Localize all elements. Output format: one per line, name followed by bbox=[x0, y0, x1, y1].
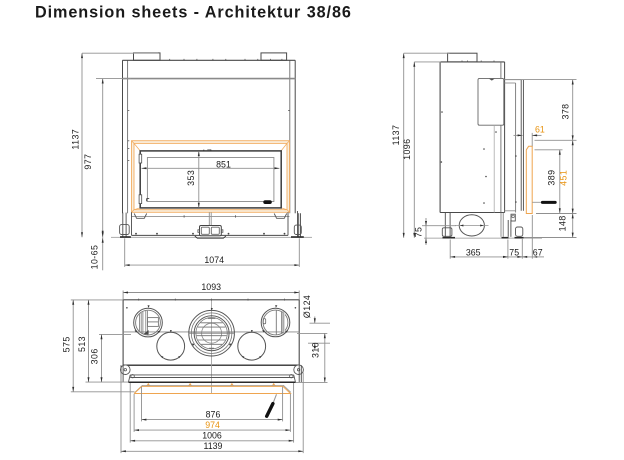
svg-text:513: 513 bbox=[77, 336, 87, 352]
svg-text:148: 148 bbox=[557, 215, 567, 231]
svg-text:Ø124: Ø124 bbox=[302, 295, 312, 318]
svg-text:876: 876 bbox=[206, 410, 221, 420]
svg-text:851: 851 bbox=[216, 159, 231, 169]
svg-text:1096: 1096 bbox=[402, 139, 412, 160]
svg-text:1139: 1139 bbox=[204, 441, 223, 451]
svg-text:75: 75 bbox=[509, 247, 519, 257]
svg-text:61: 61 bbox=[535, 125, 545, 135]
svg-text:67: 67 bbox=[533, 247, 543, 257]
svg-text:10-65: 10-65 bbox=[90, 245, 100, 270]
svg-text:353: 353 bbox=[186, 170, 196, 186]
svg-text:575: 575 bbox=[62, 336, 72, 352]
svg-text:1093: 1093 bbox=[201, 282, 221, 292]
svg-text:306: 306 bbox=[90, 348, 100, 364]
svg-text:974: 974 bbox=[205, 420, 220, 430]
svg-text:75: 75 bbox=[413, 227, 423, 238]
svg-text:Dimension sheets - Architektur: Dimension sheets - Architektur 38/86 bbox=[35, 4, 352, 22]
svg-text:378: 378 bbox=[560, 103, 570, 119]
svg-text:365: 365 bbox=[466, 247, 481, 257]
svg-text:977: 977 bbox=[83, 154, 93, 170]
svg-text:451: 451 bbox=[558, 170, 568, 186]
svg-text:1006: 1006 bbox=[202, 431, 222, 441]
svg-text:1074: 1074 bbox=[204, 255, 224, 265]
svg-text:310: 310 bbox=[311, 342, 321, 358]
svg-text:1137: 1137 bbox=[71, 129, 81, 150]
svg-text:1137: 1137 bbox=[391, 125, 401, 146]
svg-text:389: 389 bbox=[547, 170, 557, 186]
